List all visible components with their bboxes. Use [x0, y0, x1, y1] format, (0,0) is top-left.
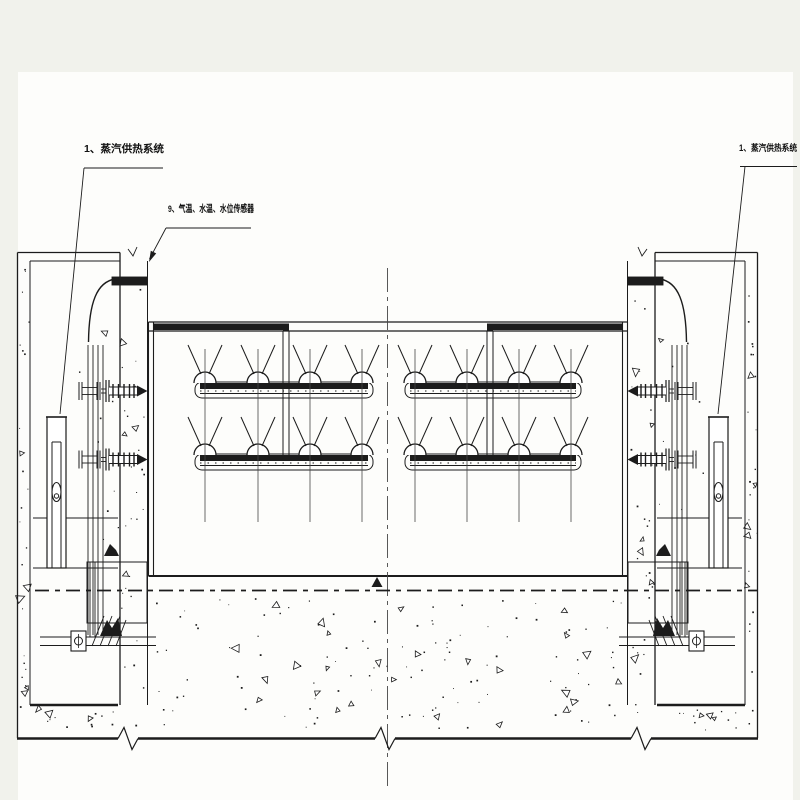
label-steam-system-left: 1、蒸汽供热系统 [84, 142, 164, 155]
label-steam-system-right: 1、蒸汽供热系统 [739, 142, 797, 153]
drawing-viewport: 1、蒸汽供热系统 1、蒸汽供热系统 9、气温、水温、水位传感器 [0, 0, 800, 800]
technical-drawing: 1、蒸汽供热系统 1、蒸汽供热系统 9、气温、水温、水位传感器 [0, 0, 800, 800]
label-temperature-water-level-sensors: 9、气温、水温、水位传感器 [168, 203, 254, 215]
